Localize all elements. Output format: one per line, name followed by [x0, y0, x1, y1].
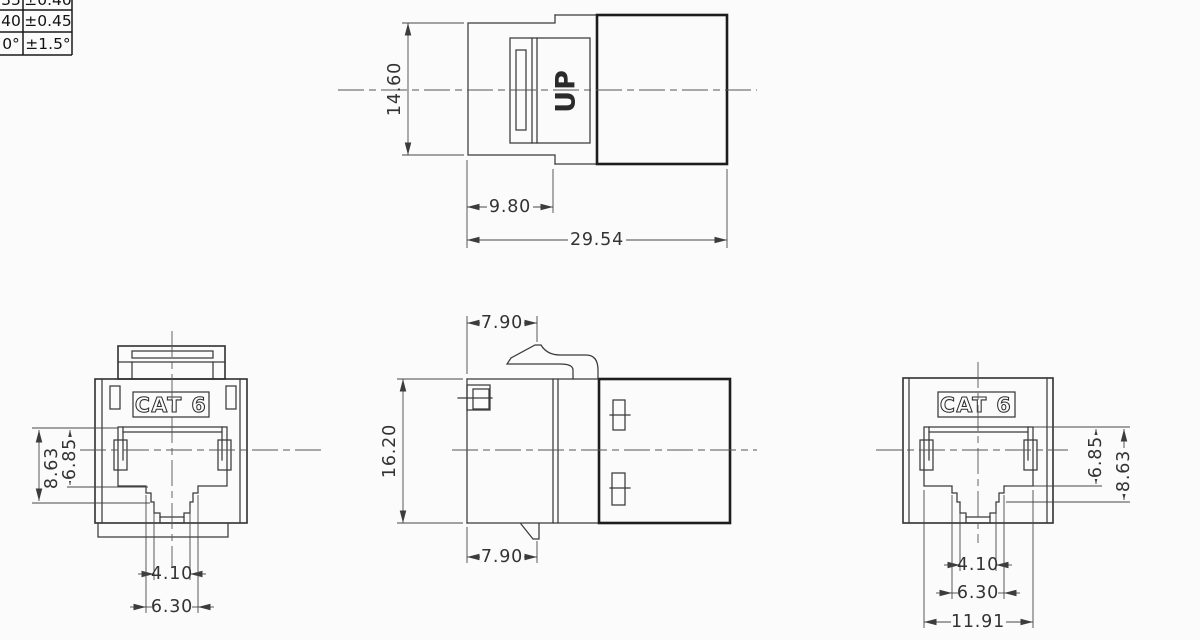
dim-label-8-63-rear: 8.63 [1114, 450, 1134, 492]
tolerance-row3-value: ±1.5° [25, 35, 70, 53]
cat6-marking-rear: CAT 6 [940, 393, 1012, 417]
dim-label-29-54: 29.54 [570, 230, 624, 250]
dim-label-4-10-front: 4.10 [151, 564, 193, 584]
up-orientation-marking: UP [551, 69, 582, 113]
dim-label-14-60: 14.60 [385, 62, 405, 116]
rear-view-rj45-socket [920, 427, 1037, 523]
dim-label-11-91: 11.91 [951, 612, 1005, 632]
dim-front-inner-height-6-85: 6.85 [60, 430, 148, 487]
tolerance-table: 35 ±0.40 40 ±0.45 0° ±1.5° [0, 0, 72, 55]
top-view: UP 14.60 9.80 29.54 [338, 15, 757, 250]
side-view-bottom-tab [521, 524, 539, 539]
dim-label-6-30-rear: 6.30 [957, 583, 999, 603]
side-view: 7.90 16.20 7.90 [380, 313, 757, 567]
dim-label-7-90-bottom: 7.90 [481, 547, 523, 567]
top-view-front-housing [468, 15, 555, 164]
tolerance-row2-value: ±0.45 [24, 12, 72, 30]
tolerance-row3-limit: 0° [2, 35, 20, 53]
dim-side-height-16-20: 16.20 [380, 379, 463, 523]
top-view-rear-housing [597, 15, 727, 164]
keystone-jack-drawing: 35 ±0.40 40 ±0.45 0° ±1.5° UP 14.60 [0, 0, 1200, 640]
cat6-marking-front: CAT 6 [135, 393, 207, 417]
tolerance-row1-value: ±0.40 [24, 0, 72, 9]
dim-label-16-20: 16.20 [380, 424, 400, 478]
dim-label-9-80: 9.80 [489, 197, 531, 217]
tolerance-row2-limit: 40 [1, 12, 21, 30]
front-view-left-notch [110, 386, 120, 409]
side-view-front-body [467, 379, 599, 523]
side-view-shield-detail [458, 385, 492, 410]
dim-top-front-length-9-80: 9.80 [467, 160, 553, 248]
rear-view: CAT 6 6.85 8.63 [876, 362, 1134, 632]
dim-label-4-10-rear: 4.10 [957, 555, 999, 575]
dim-label-6-85-rear: 6.85 [1086, 436, 1106, 478]
dim-side-front-bottom-7-90: 7.90 [467, 527, 537, 567]
front-view-top-tab [118, 346, 225, 379]
dim-top-height-14-60: 14.60 [385, 23, 464, 155]
dim-label-6-85-front: 6.85 [60, 438, 80, 480]
front-view-rj45-socket [114, 427, 231, 523]
front-view-right-notch [226, 386, 236, 409]
side-view-latch-windows [610, 400, 630, 505]
dim-label-7-90-top: 7.90 [481, 313, 523, 333]
dim-front-opening-height-8-63: 8.63 [32, 428, 150, 503]
front-view: CAT 6 8.63 6.85 [32, 331, 325, 617]
cad-drawing-sheet: 35 ±0.40 40 ±0.45 0° ±1.5° UP 14.60 [0, 0, 1200, 640]
front-view-bottom-flange [98, 523, 228, 537]
tolerance-row1-limit: 35 [1, 0, 21, 9]
side-view-latch-spring [507, 345, 598, 379]
dim-label-6-30-front: 6.30 [151, 597, 193, 617]
dim-side-front-top-7-90: 7.90 [467, 313, 537, 374]
dim-label-8-63-front: 8.63 [42, 447, 62, 489]
